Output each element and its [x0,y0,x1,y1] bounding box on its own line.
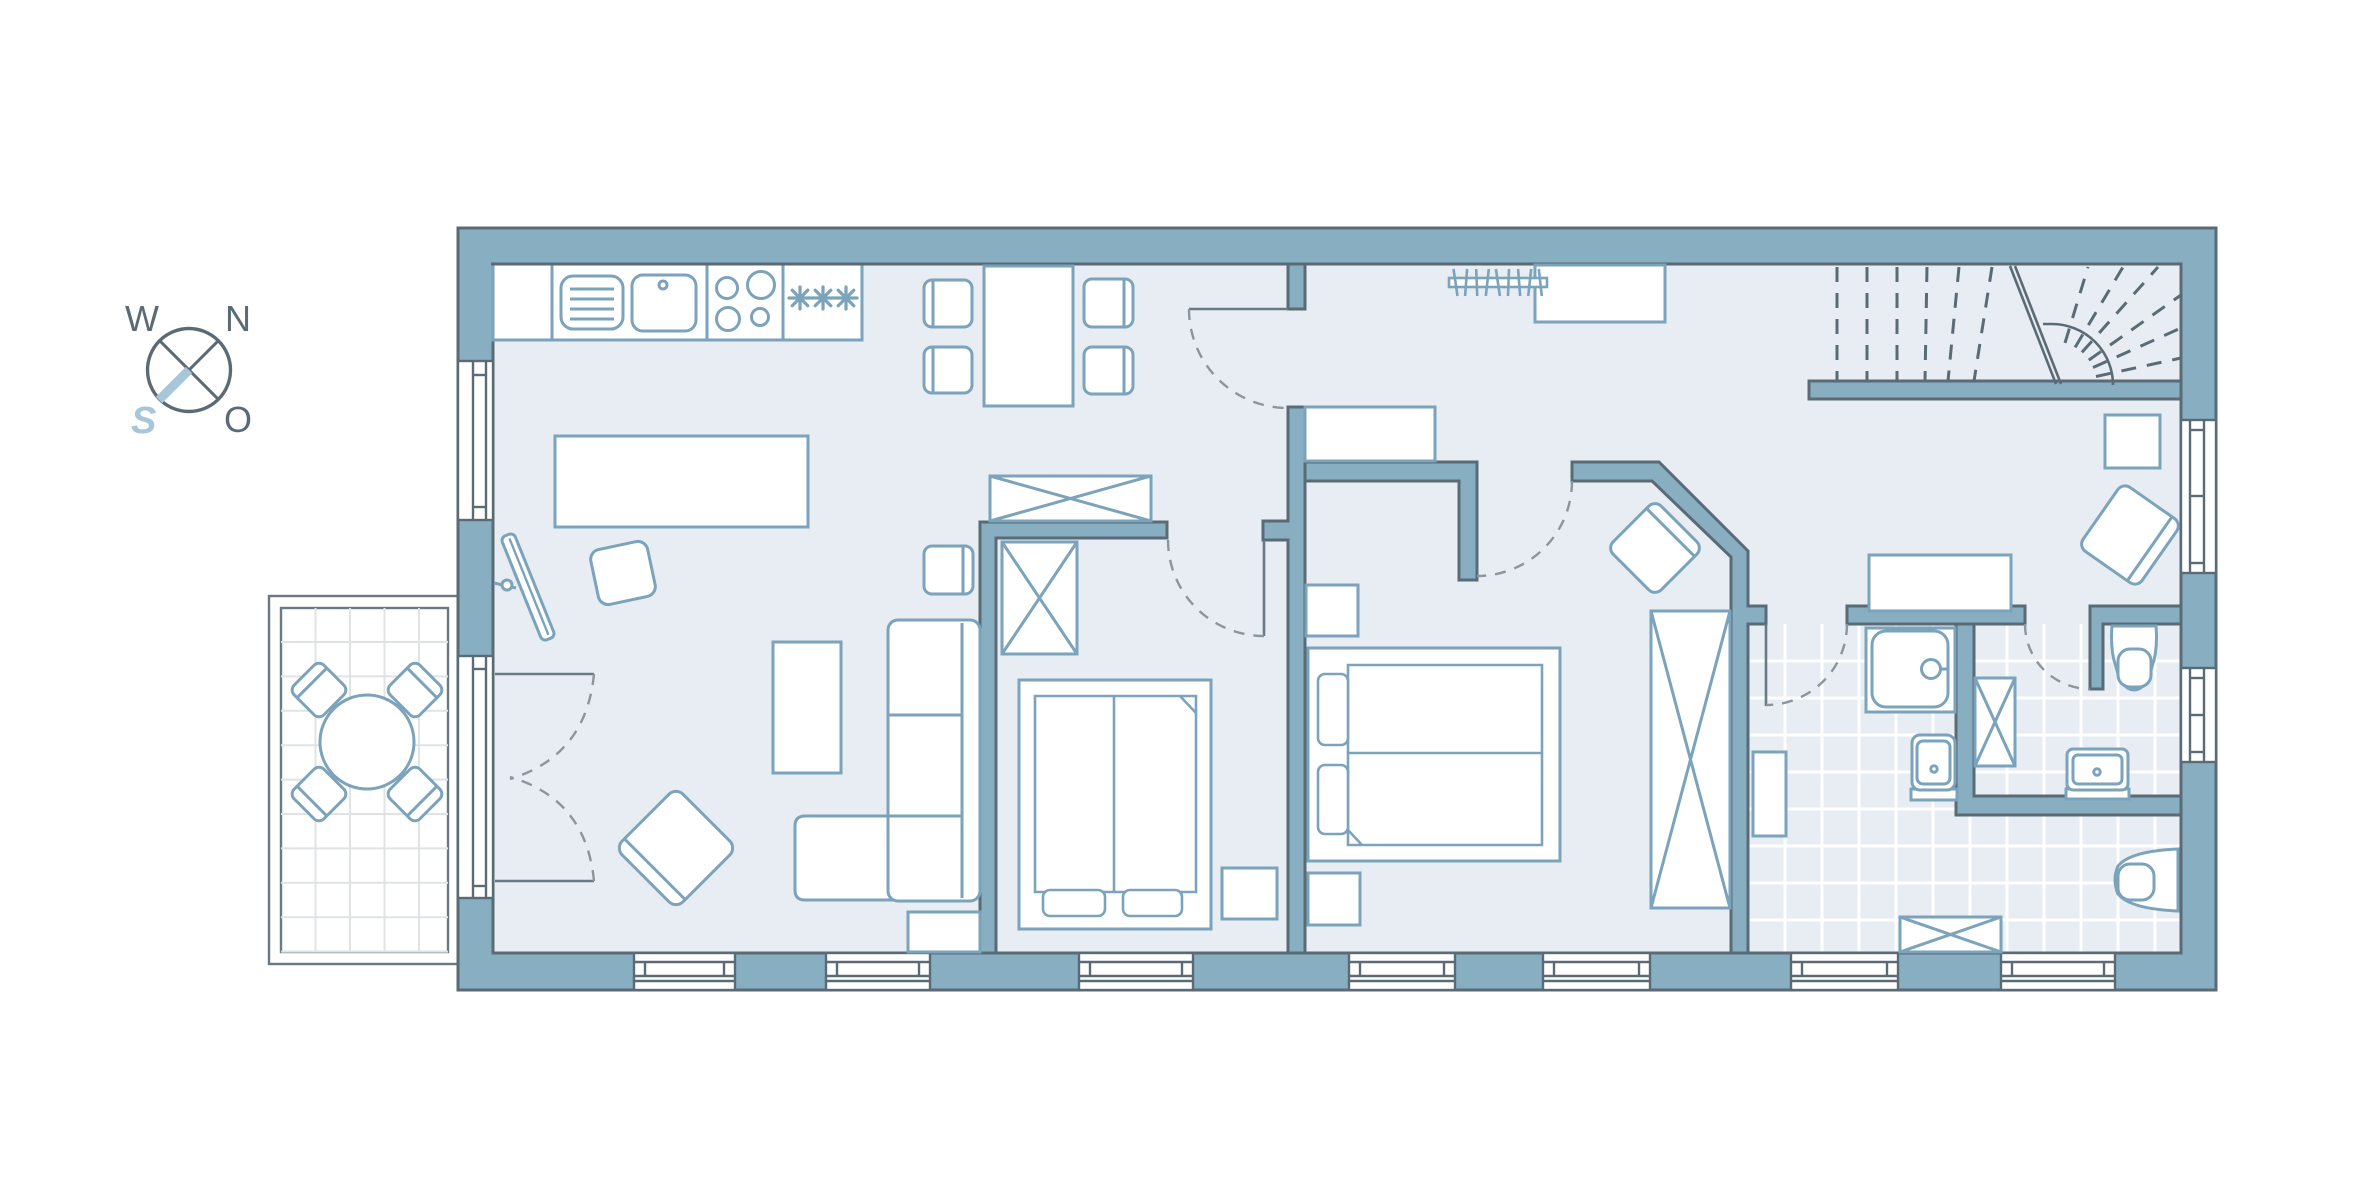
svg-text:W: W [125,298,159,339]
svg-text:O: O [224,399,252,440]
svg-text:N: N [225,298,251,339]
svg-text:S: S [131,400,156,442]
